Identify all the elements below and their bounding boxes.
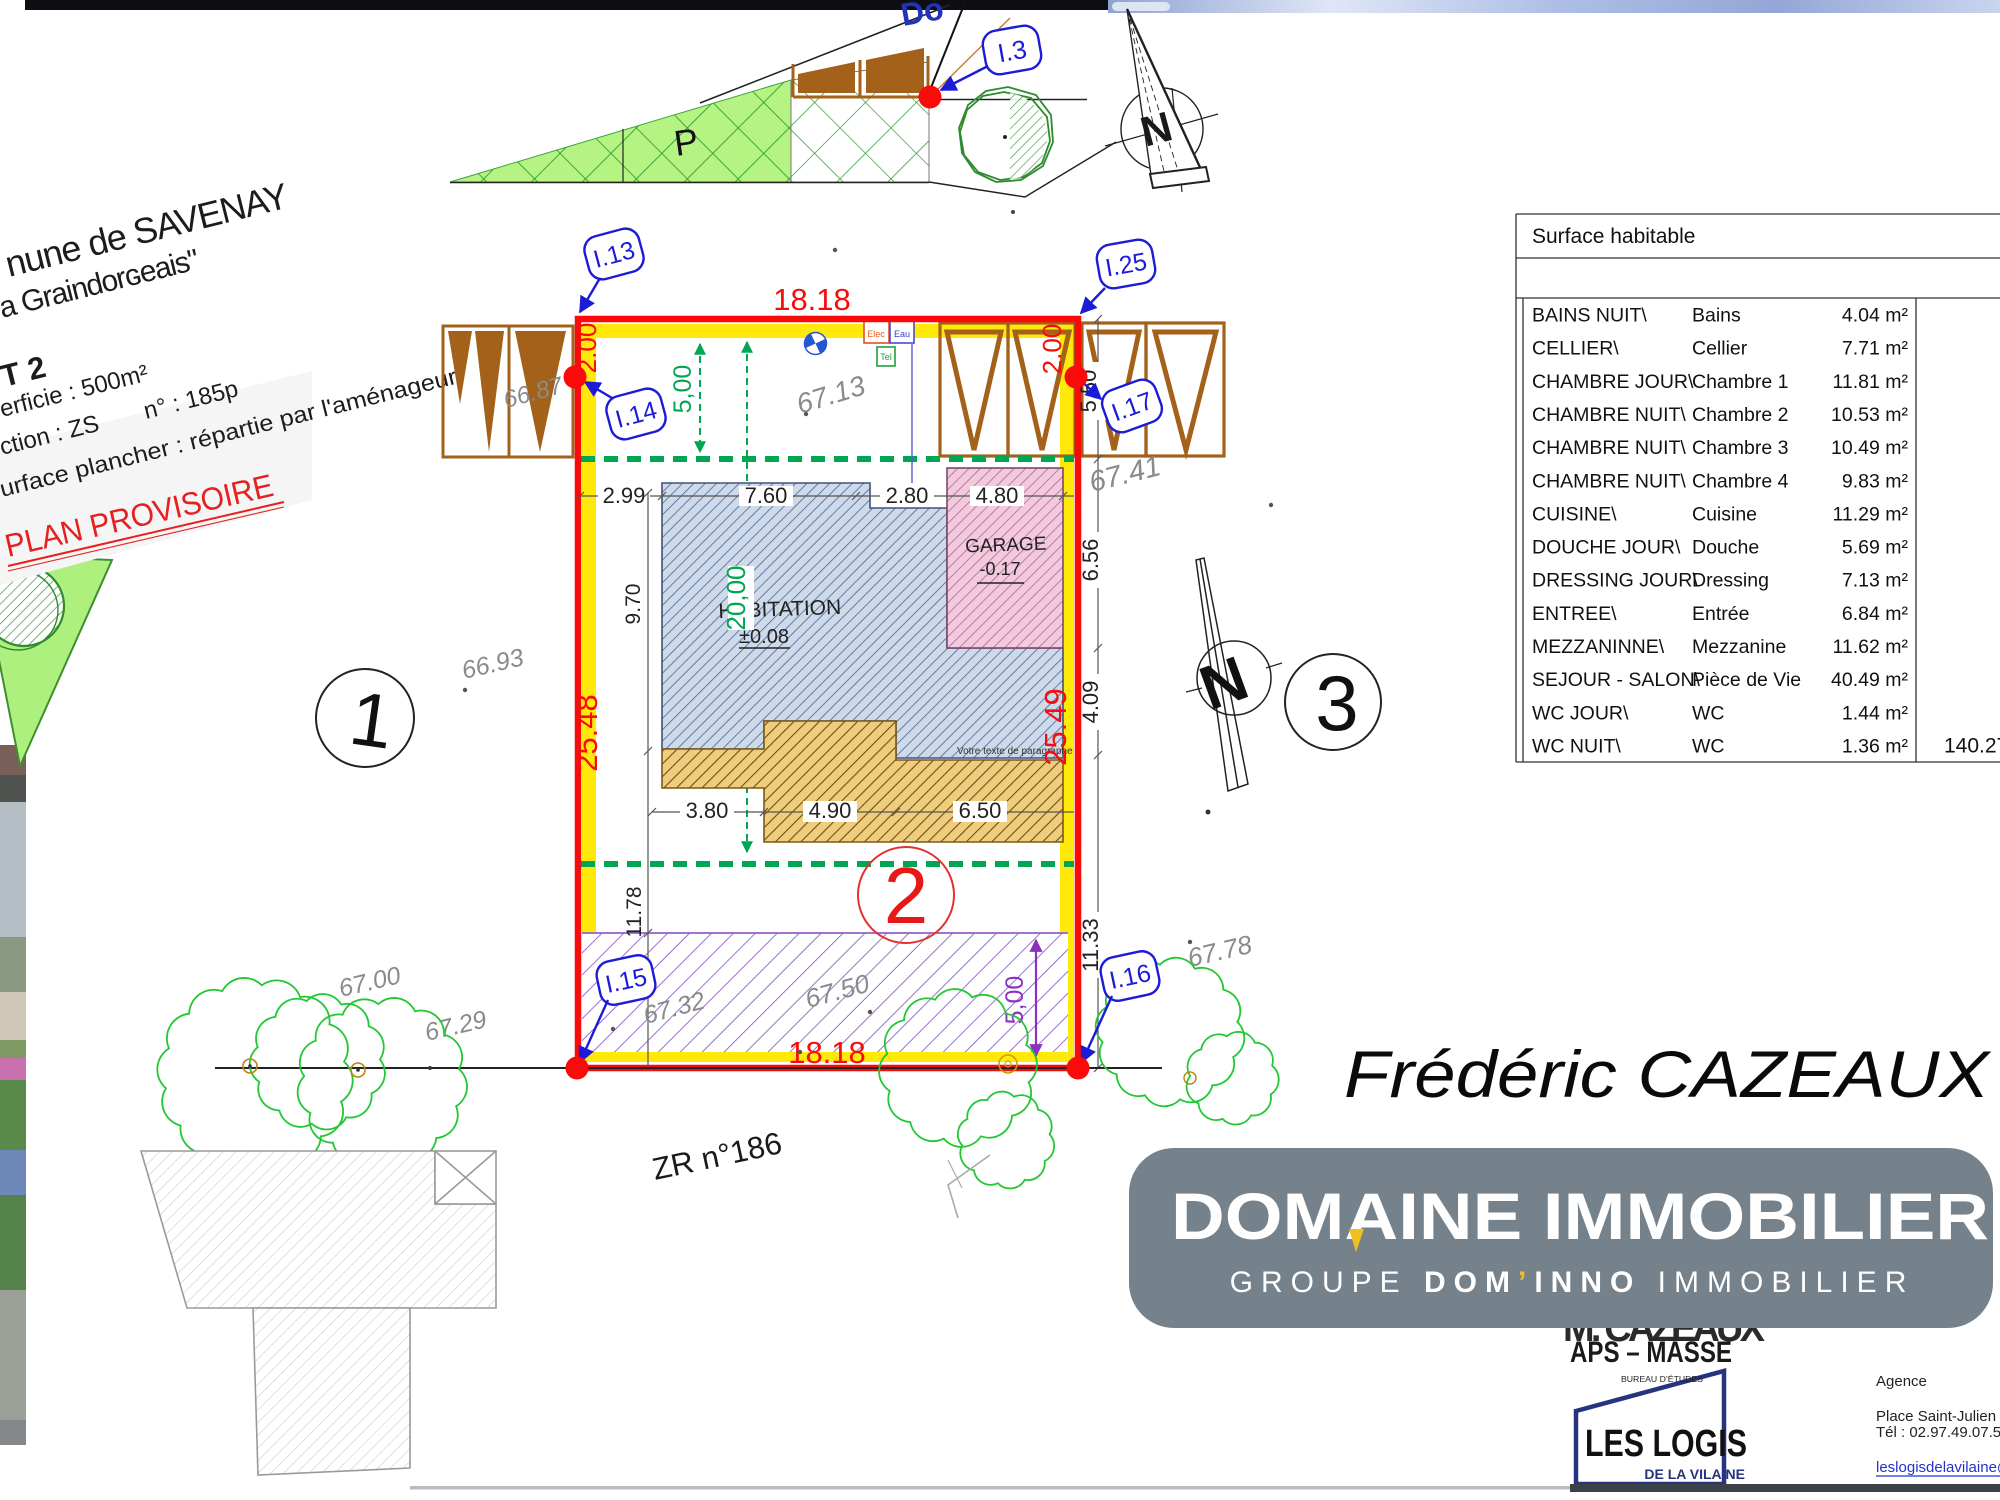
svg-text:Dressing: Dressing bbox=[1692, 570, 1769, 592]
svg-text:2.80: 2.80 bbox=[886, 483, 929, 508]
svg-text:10.53 m²: 10.53 m² bbox=[1831, 404, 1908, 426]
svg-text:18.18: 18.18 bbox=[773, 282, 851, 317]
svg-text:BUREAU D’ÉTUDES: BUREAU D’ÉTUDES bbox=[1621, 1374, 1703, 1384]
svg-text:4.90: 4.90 bbox=[809, 798, 852, 823]
svg-text:11.33: 11.33 bbox=[1078, 918, 1103, 971]
svg-text:2.99: 2.99 bbox=[603, 483, 646, 508]
svg-text:6.84 m²: 6.84 m² bbox=[1842, 603, 1909, 625]
svg-text:Place Saint-Julien 56 1: Place Saint-Julien 56 1 bbox=[1876, 1408, 2000, 1425]
svg-text:ZR n°186: ZR n°186 bbox=[649, 1125, 785, 1187]
svg-text:Cellier: Cellier bbox=[1692, 338, 1748, 360]
svg-text:11.29 m²: 11.29 m² bbox=[1832, 503, 1908, 525]
svg-text:11.62 m²: 11.62 m² bbox=[1832, 636, 1908, 658]
svg-text:11.81 m²: 11.81 m² bbox=[1832, 371, 1908, 393]
svg-text:2.00: 2.00 bbox=[1037, 324, 1067, 375]
svg-text:Frédéric CAZEAUX: Frédéric CAZEAUX bbox=[1344, 1037, 1992, 1111]
svg-text:5.69 m²: 5.69 m² bbox=[1842, 537, 1909, 559]
svg-text:GARAGE: GARAGE bbox=[965, 534, 1047, 558]
svg-text:7.71 m²: 7.71 m² bbox=[1842, 338, 1909, 360]
svg-text:CUISINE\: CUISINE\ bbox=[1532, 503, 1617, 525]
svg-text:GROUPE DOM’INNO IMMOBILIER: GROUPE DOM’INNO IMMOBILIER bbox=[1230, 1266, 1915, 1299]
svg-text:11.78: 11.78 bbox=[623, 887, 646, 938]
svg-text:6.56: 6.56 bbox=[1078, 539, 1103, 582]
svg-text:3: 3 bbox=[1315, 659, 1358, 747]
svg-text:67.13: 67.13 bbox=[793, 369, 869, 419]
svg-text:DE LA VILAINE: DE LA VILAINE bbox=[1644, 1466, 1745, 1482]
svg-text:-0.17: -0.17 bbox=[979, 559, 1020, 579]
svg-text:ENTREE\: ENTREE\ bbox=[1532, 603, 1617, 625]
svg-text:Bains: Bains bbox=[1692, 305, 1741, 327]
svg-text:Chambre 3: Chambre 3 bbox=[1692, 437, 1788, 459]
svg-text:BAINS NUIT\: BAINS NUIT\ bbox=[1532, 305, 1647, 327]
svg-text:20,00: 20,00 bbox=[721, 565, 751, 630]
svg-text:I.3: I.3 bbox=[995, 34, 1029, 69]
svg-text:3.80: 3.80 bbox=[686, 798, 729, 823]
svg-text:4.04 m²: 4.04 m² bbox=[1842, 305, 1909, 327]
svg-text:7.60: 7.60 bbox=[745, 483, 788, 508]
svg-text:25.48: 25.48 bbox=[569, 694, 604, 772]
svg-text:40.49 m²: 40.49 m² bbox=[1831, 669, 1908, 691]
svg-text:WC: WC bbox=[1692, 735, 1725, 757]
svg-text:Surface habitable: Surface habitable bbox=[1532, 225, 1695, 248]
svg-text:2: 2 bbox=[884, 851, 929, 940]
svg-text:1.36 m²: 1.36 m² bbox=[1842, 735, 1909, 757]
svg-text:1: 1 bbox=[345, 676, 399, 766]
svg-text:Eau: Eau bbox=[894, 329, 910, 339]
svg-text:66.93: 66.93 bbox=[459, 643, 526, 684]
svg-text:67.00: 67.00 bbox=[336, 961, 403, 1002]
svg-text:DRESSING JOUR\: DRESSING JOUR\ bbox=[1532, 570, 1698, 592]
svg-text:Chambre 2: Chambre 2 bbox=[1692, 404, 1788, 426]
svg-text:CHAMBRE JOUR\: CHAMBRE JOUR\ bbox=[1532, 371, 1694, 393]
svg-text:APS – MASSE: APS – MASSE bbox=[1570, 1336, 1732, 1369]
svg-text:MEZZANINNE\: MEZZANINNE\ bbox=[1532, 636, 1665, 658]
svg-text:DOMAINE IMMOBILIER: DOMAINE IMMOBILIER bbox=[1171, 1179, 1989, 1253]
svg-text:Elec: Elec bbox=[867, 329, 885, 339]
svg-text:leslogisdelavilaine@b: leslogisdelavilaine@b bbox=[1876, 1459, 2000, 1476]
svg-text:Douche: Douche bbox=[1692, 537, 1759, 559]
svg-text:Cuisine: Cuisine bbox=[1692, 503, 1757, 525]
svg-text:WC: WC bbox=[1692, 702, 1725, 724]
svg-text:Chambre 4: Chambre 4 bbox=[1692, 470, 1789, 492]
svg-text:Pièce de Vie: Pièce de Vie bbox=[1692, 669, 1801, 691]
svg-text:CHAMBRE NUIT\: CHAMBRE NUIT\ bbox=[1532, 470, 1686, 492]
svg-text:9.70: 9.70 bbox=[622, 584, 645, 625]
svg-text:CHAMBRE NUIT\: CHAMBRE NUIT\ bbox=[1532, 404, 1686, 426]
svg-text:140.27: 140.27 bbox=[1944, 734, 2000, 757]
svg-text:WC JOUR\: WC JOUR\ bbox=[1532, 702, 1629, 724]
svg-text:9.83 m²: 9.83 m² bbox=[1842, 470, 1909, 492]
svg-text:25.49: 25.49 bbox=[1038, 688, 1073, 766]
svg-text:4.09: 4.09 bbox=[1078, 681, 1103, 724]
svg-text:Tel: Tel bbox=[880, 352, 892, 362]
svg-text:DOUCHE JOUR\: DOUCHE JOUR\ bbox=[1532, 537, 1681, 559]
svg-text:N: N bbox=[1191, 644, 1257, 724]
svg-text:7.13 m²: 7.13 m² bbox=[1842, 570, 1909, 592]
svg-text:CHAMBRE NUIT\: CHAMBRE NUIT\ bbox=[1532, 437, 1686, 459]
svg-text:5,00: 5,00 bbox=[669, 365, 697, 414]
svg-text:67.78: 67.78 bbox=[1185, 929, 1256, 973]
svg-text:4.80: 4.80 bbox=[976, 483, 1019, 508]
svg-text:WC NUIT\: WC NUIT\ bbox=[1532, 735, 1621, 757]
svg-text:Tél : 02.97.49.07.51: Tél : 02.97.49.07.51 bbox=[1876, 1424, 2000, 1441]
svg-text:Chambre 1: Chambre 1 bbox=[1692, 371, 1788, 393]
svg-text:LES LOGIS: LES LOGIS bbox=[1585, 1423, 1747, 1465]
svg-text:1.44 m²: 1.44 m² bbox=[1842, 702, 1909, 724]
svg-text:CELLIER\: CELLIER\ bbox=[1532, 338, 1619, 360]
svg-text:Entrée: Entrée bbox=[1692, 603, 1749, 625]
svg-text:Agence: Agence bbox=[1876, 1373, 1927, 1390]
svg-text:Do: Do bbox=[898, 0, 946, 33]
svg-text:Mezzanine: Mezzanine bbox=[1692, 636, 1786, 658]
svg-text:10.49 m²: 10.49 m² bbox=[1831, 437, 1908, 459]
svg-text:SEJOUR - SALON\: SEJOUR - SALON\ bbox=[1532, 669, 1701, 691]
svg-text:6.50: 6.50 bbox=[959, 798, 1002, 823]
